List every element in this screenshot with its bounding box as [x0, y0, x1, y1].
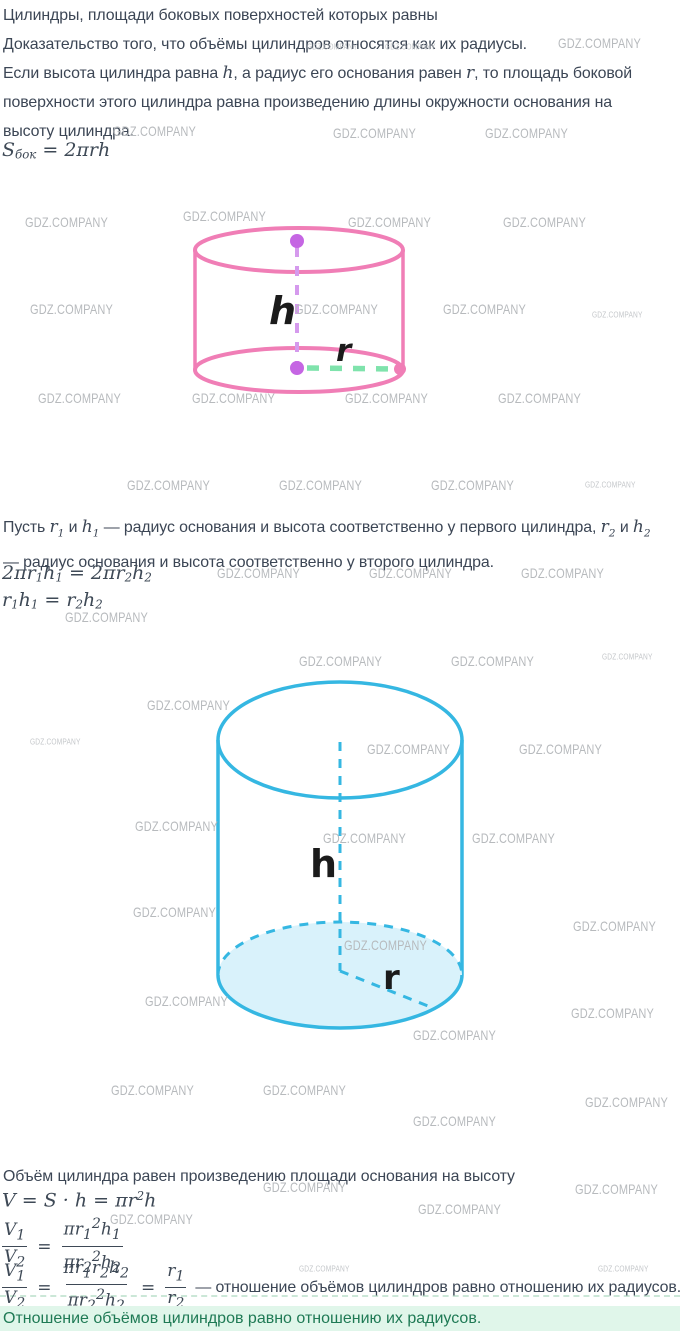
pink-cylinder-bottom-center-dot — [290, 361, 304, 375]
intro-line-1: Цилиндры, площади боковых поверхностей к… — [3, 1, 632, 30]
var-h2: h2 — [633, 517, 651, 537]
watermark: GDZ.COMPANY — [30, 737, 81, 747]
watermark: GDZ.COMPANY — [519, 742, 602, 757]
watermark: GDZ.COMPANY — [498, 391, 581, 406]
watermark: GDZ.COMPANY — [571, 1006, 654, 1021]
pink-cylinder-diagram: h r — [185, 215, 417, 397]
watermark: GDZ.COMPANY — [30, 302, 113, 317]
var-r1: r1 — [50, 517, 65, 537]
watermark: GDZ.COMPANY — [279, 478, 362, 493]
formula-equal-lateral: 2πr1h1 = 2πr2h2 — [2, 562, 152, 585]
formula-rh-equal: r1h1 = r2h2 — [2, 589, 103, 612]
watermark: GDZ.COMPANY — [431, 478, 514, 493]
page: GDZ.COMPANYGDZ.COMPANYGDZ.COMPANYGDZ.COM… — [0, 0, 680, 1331]
watermark: GDZ.COMPANY — [418, 1202, 501, 1217]
watermark: GDZ.COMPANY — [65, 610, 148, 625]
watermark: GDZ.COMPANY — [111, 1083, 194, 1098]
conclusion-callout: Отношение объёмов цилиндров равно отноше… — [0, 1306, 680, 1331]
intro-line-4: поверхности этого цилиндра равна произве… — [3, 88, 632, 117]
intro-line-3: Если высота цилиндра равна h, а радиус е… — [3, 59, 632, 88]
blue-cylinder-height-label: h — [310, 842, 337, 886]
watermark: GDZ.COMPANY — [133, 905, 216, 920]
watermark: GDZ.COMPANY — [575, 1182, 658, 1197]
watermark: GDZ.COMPANY — [585, 1095, 668, 1110]
var-h: h — [222, 63, 233, 83]
conclusion-text: Отношение объёмов цилиндров равно отноше… — [0, 1306, 680, 1331]
watermark: GDZ.COMPANY — [263, 1083, 346, 1098]
watermark: GDZ.COMPANY — [135, 819, 218, 834]
intro-line-2: Доказательство того, что объёмы цилиндро… — [3, 30, 632, 59]
blue-cylinder-diagram: h r — [212, 676, 470, 1032]
pink-cylinder-top-center-dot — [290, 234, 304, 248]
var-r2: r2 — [601, 517, 616, 537]
var-r: r — [466, 63, 474, 83]
intro-paragraphs: Цилиндры, площади боковых поверхностей к… — [3, 1, 632, 146]
watermark: GDZ.COMPANY — [592, 310, 643, 320]
watermark: GDZ.COMPANY — [413, 1114, 496, 1129]
watermark: GDZ.COMPANY — [503, 215, 586, 230]
formula-volume: V = S · h = πr2h — [2, 1189, 156, 1211]
formula-lateral-surface: Sбок = 2πrh — [2, 139, 110, 162]
watermark: GDZ.COMPANY — [127, 478, 210, 493]
watermark: GDZ.COMPANY — [38, 391, 121, 406]
watermark: GDZ.COMPANY — [602, 652, 653, 662]
watermark: GDZ.COMPANY — [443, 302, 526, 317]
blue-cylinder-radius-label: r — [383, 958, 400, 998]
watermark: GDZ.COMPANY — [451, 654, 534, 669]
watermark: GDZ.COMPANY — [25, 215, 108, 230]
watermark: GDZ.COMPANY — [573, 919, 656, 934]
middle-line-1: Пусть r1 и h1 — радиус основания и высот… — [3, 513, 651, 548]
pink-cylinder-radius-label: r — [336, 333, 353, 369]
var-h1: h1 — [82, 517, 100, 537]
pink-cylinder-height-label: h — [269, 289, 296, 333]
watermark: GDZ.COMPANY — [585, 480, 636, 490]
ratio-conclusion-text: — отношение объёмов цилиндров равно отно… — [195, 1279, 680, 1297]
pink-cylinder-edge-dot — [394, 363, 406, 375]
volume-heading: Объём цилиндра равен произведению площад… — [3, 1162, 515, 1191]
watermark: GDZ.COMPANY — [299, 654, 382, 669]
watermark: GDZ.COMPANY — [472, 831, 555, 846]
